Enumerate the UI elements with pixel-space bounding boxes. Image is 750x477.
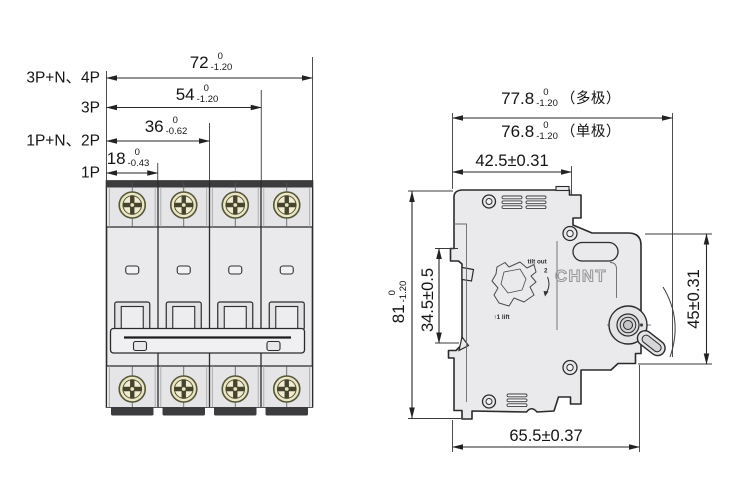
dimension-base-depth: 65.5±0.37	[509, 428, 582, 445]
tilt-step-number: 2	[544, 268, 548, 275]
bottom-trim-tabs	[111, 407, 308, 416]
phillips-screw-icon	[222, 192, 248, 218]
side-view-drawing: tilt out 2 ↑1 lift CHNT	[449, 187, 676, 420]
lift-note: ↑1 lift	[494, 314, 511, 321]
dimension-width-3p: 54 0-1.20	[176, 84, 219, 106]
handle-tie-bar	[111, 329, 305, 354]
dimension-depth-single-pole: 76.8 0-1.20 （单极）	[501, 121, 621, 143]
side-window-oval	[573, 243, 618, 262]
tilt-out-note: tilt out	[528, 259, 548, 266]
dimension-rail-depth: 42.5±0.31	[475, 153, 548, 170]
pole-label-1p: 1P	[81, 165, 100, 181]
phillips-screw-icon	[119, 376, 145, 402]
pole-label-3p: 3P	[81, 100, 100, 116]
din-clip-tab	[462, 268, 474, 282]
phillips-screw-icon	[171, 376, 197, 402]
dimension-depth-multi-pole: 77.8 0-1.20 （多极）	[501, 88, 621, 110]
drawing-linework: tilt out 2 ↑1 lift CHNT	[0, 0, 750, 477]
top-tab	[556, 187, 569, 191]
dimension-rail-notch-height: 34.5±0.5	[420, 268, 437, 332]
dimension-width-2p: 36 0-0.62	[145, 116, 188, 138]
dimension-overall-height: 81 0-1.20	[388, 281, 410, 324]
phillips-screw-icon	[274, 376, 300, 402]
pole-label-4p: 3P+N、4P	[26, 70, 100, 86]
front-view-drawing	[107, 181, 313, 416]
mcb-dimension-drawing: tilt out 2 ↑1 lift CHNT	[0, 0, 750, 477]
phillips-screw-icon	[222, 376, 248, 402]
dimension-width-1p: 18 0-0.43	[107, 148, 150, 170]
phillips-screw-icon	[274, 192, 300, 218]
chint-logo: CHNT	[555, 268, 607, 286]
side-body-outline	[449, 190, 642, 419]
phillips-screw-icon	[119, 192, 145, 218]
phillips-screw-icon	[171, 192, 197, 218]
dimension-front-face-height: 45±0.31	[686, 269, 703, 329]
pole-label-2p: 1P+N、2P	[26, 133, 100, 149]
dimension-width-4p: 72 0-1.20	[190, 52, 233, 74]
